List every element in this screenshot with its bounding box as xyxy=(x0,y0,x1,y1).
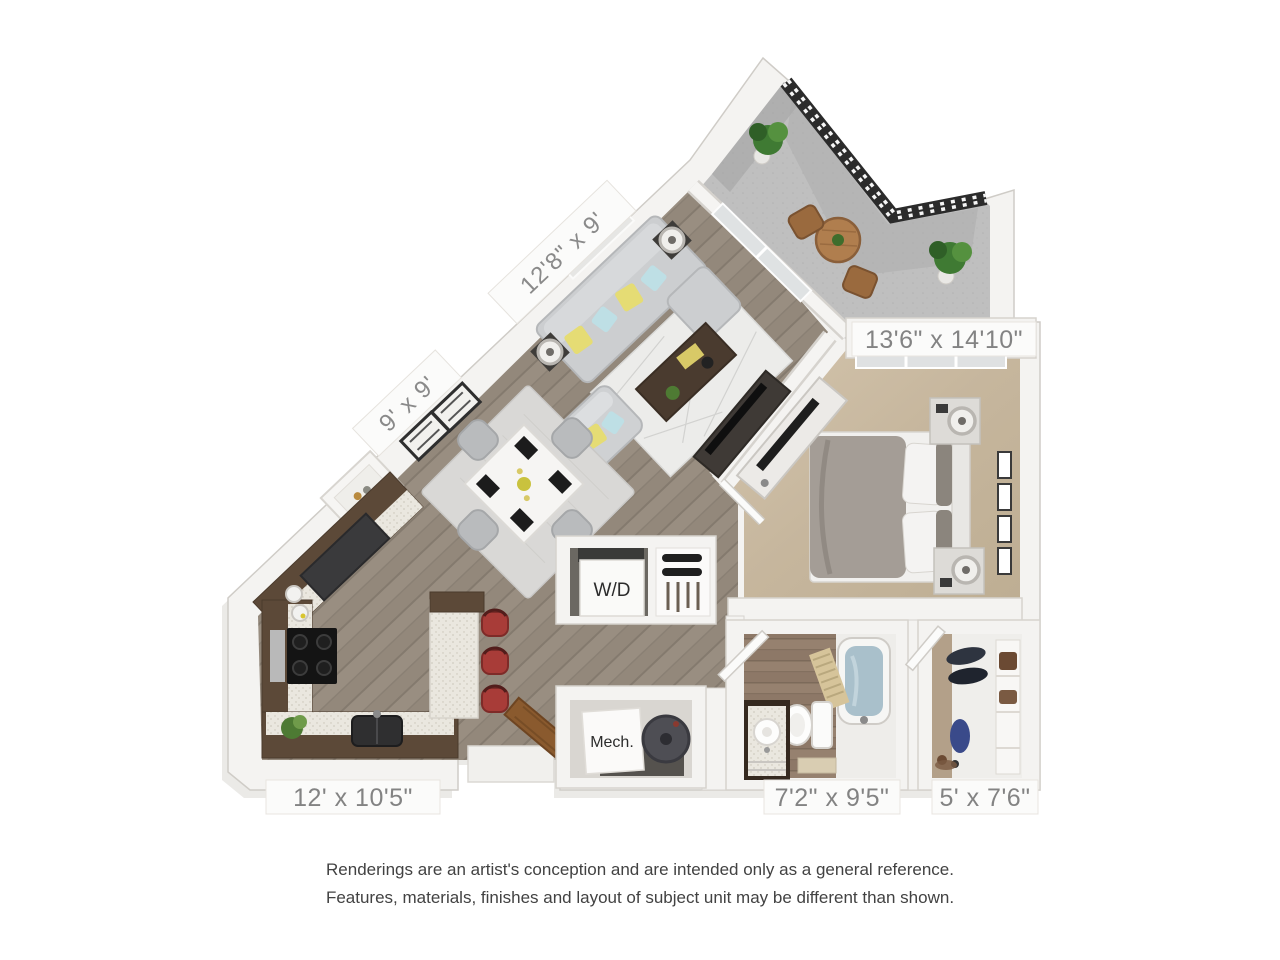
kitchen-label: 12' x 10'5" xyxy=(266,780,440,814)
bathroom-vanity xyxy=(744,700,790,780)
laundry-closet: W/D xyxy=(556,536,716,624)
mech-label: Mech. xyxy=(590,734,634,751)
disclaimer: Renderings are an artist's conception an… xyxy=(0,856,1280,912)
bathroom-label: 7'2" x 9'5" xyxy=(764,780,900,814)
svg-text:13'6" x 14'10": 13'6" x 14'10" xyxy=(865,326,1023,354)
closet-label: 5' x 7'6" xyxy=(932,780,1038,814)
kitchen-island xyxy=(430,600,478,718)
bar-stool xyxy=(482,610,508,712)
washer-dryer-label: W/D xyxy=(594,580,631,601)
bedroom-label: 13'6" x 14'10" xyxy=(852,322,1036,356)
floor-plan-page: W/D Mech. xyxy=(0,0,1280,960)
walk-in-closet xyxy=(906,620,1040,790)
floor-plan-svg: W/D Mech. xyxy=(0,0,1280,960)
disclaimer-line-1: Renderings are an artist's conception an… xyxy=(0,856,1280,884)
svg-text:5' x 7'6": 5' x 7'6" xyxy=(939,784,1030,812)
svg-text:7'2" x 9'5": 7'2" x 9'5" xyxy=(775,784,890,812)
svg-text:12' x 10'5": 12' x 10'5" xyxy=(293,784,413,812)
mech-room: Mech. xyxy=(556,686,706,788)
disclaimer-line-2: Features, materials, finishes and layout… xyxy=(0,884,1280,912)
floor-plan-image: W/D Mech. xyxy=(0,0,1280,960)
bathroom xyxy=(718,620,908,790)
